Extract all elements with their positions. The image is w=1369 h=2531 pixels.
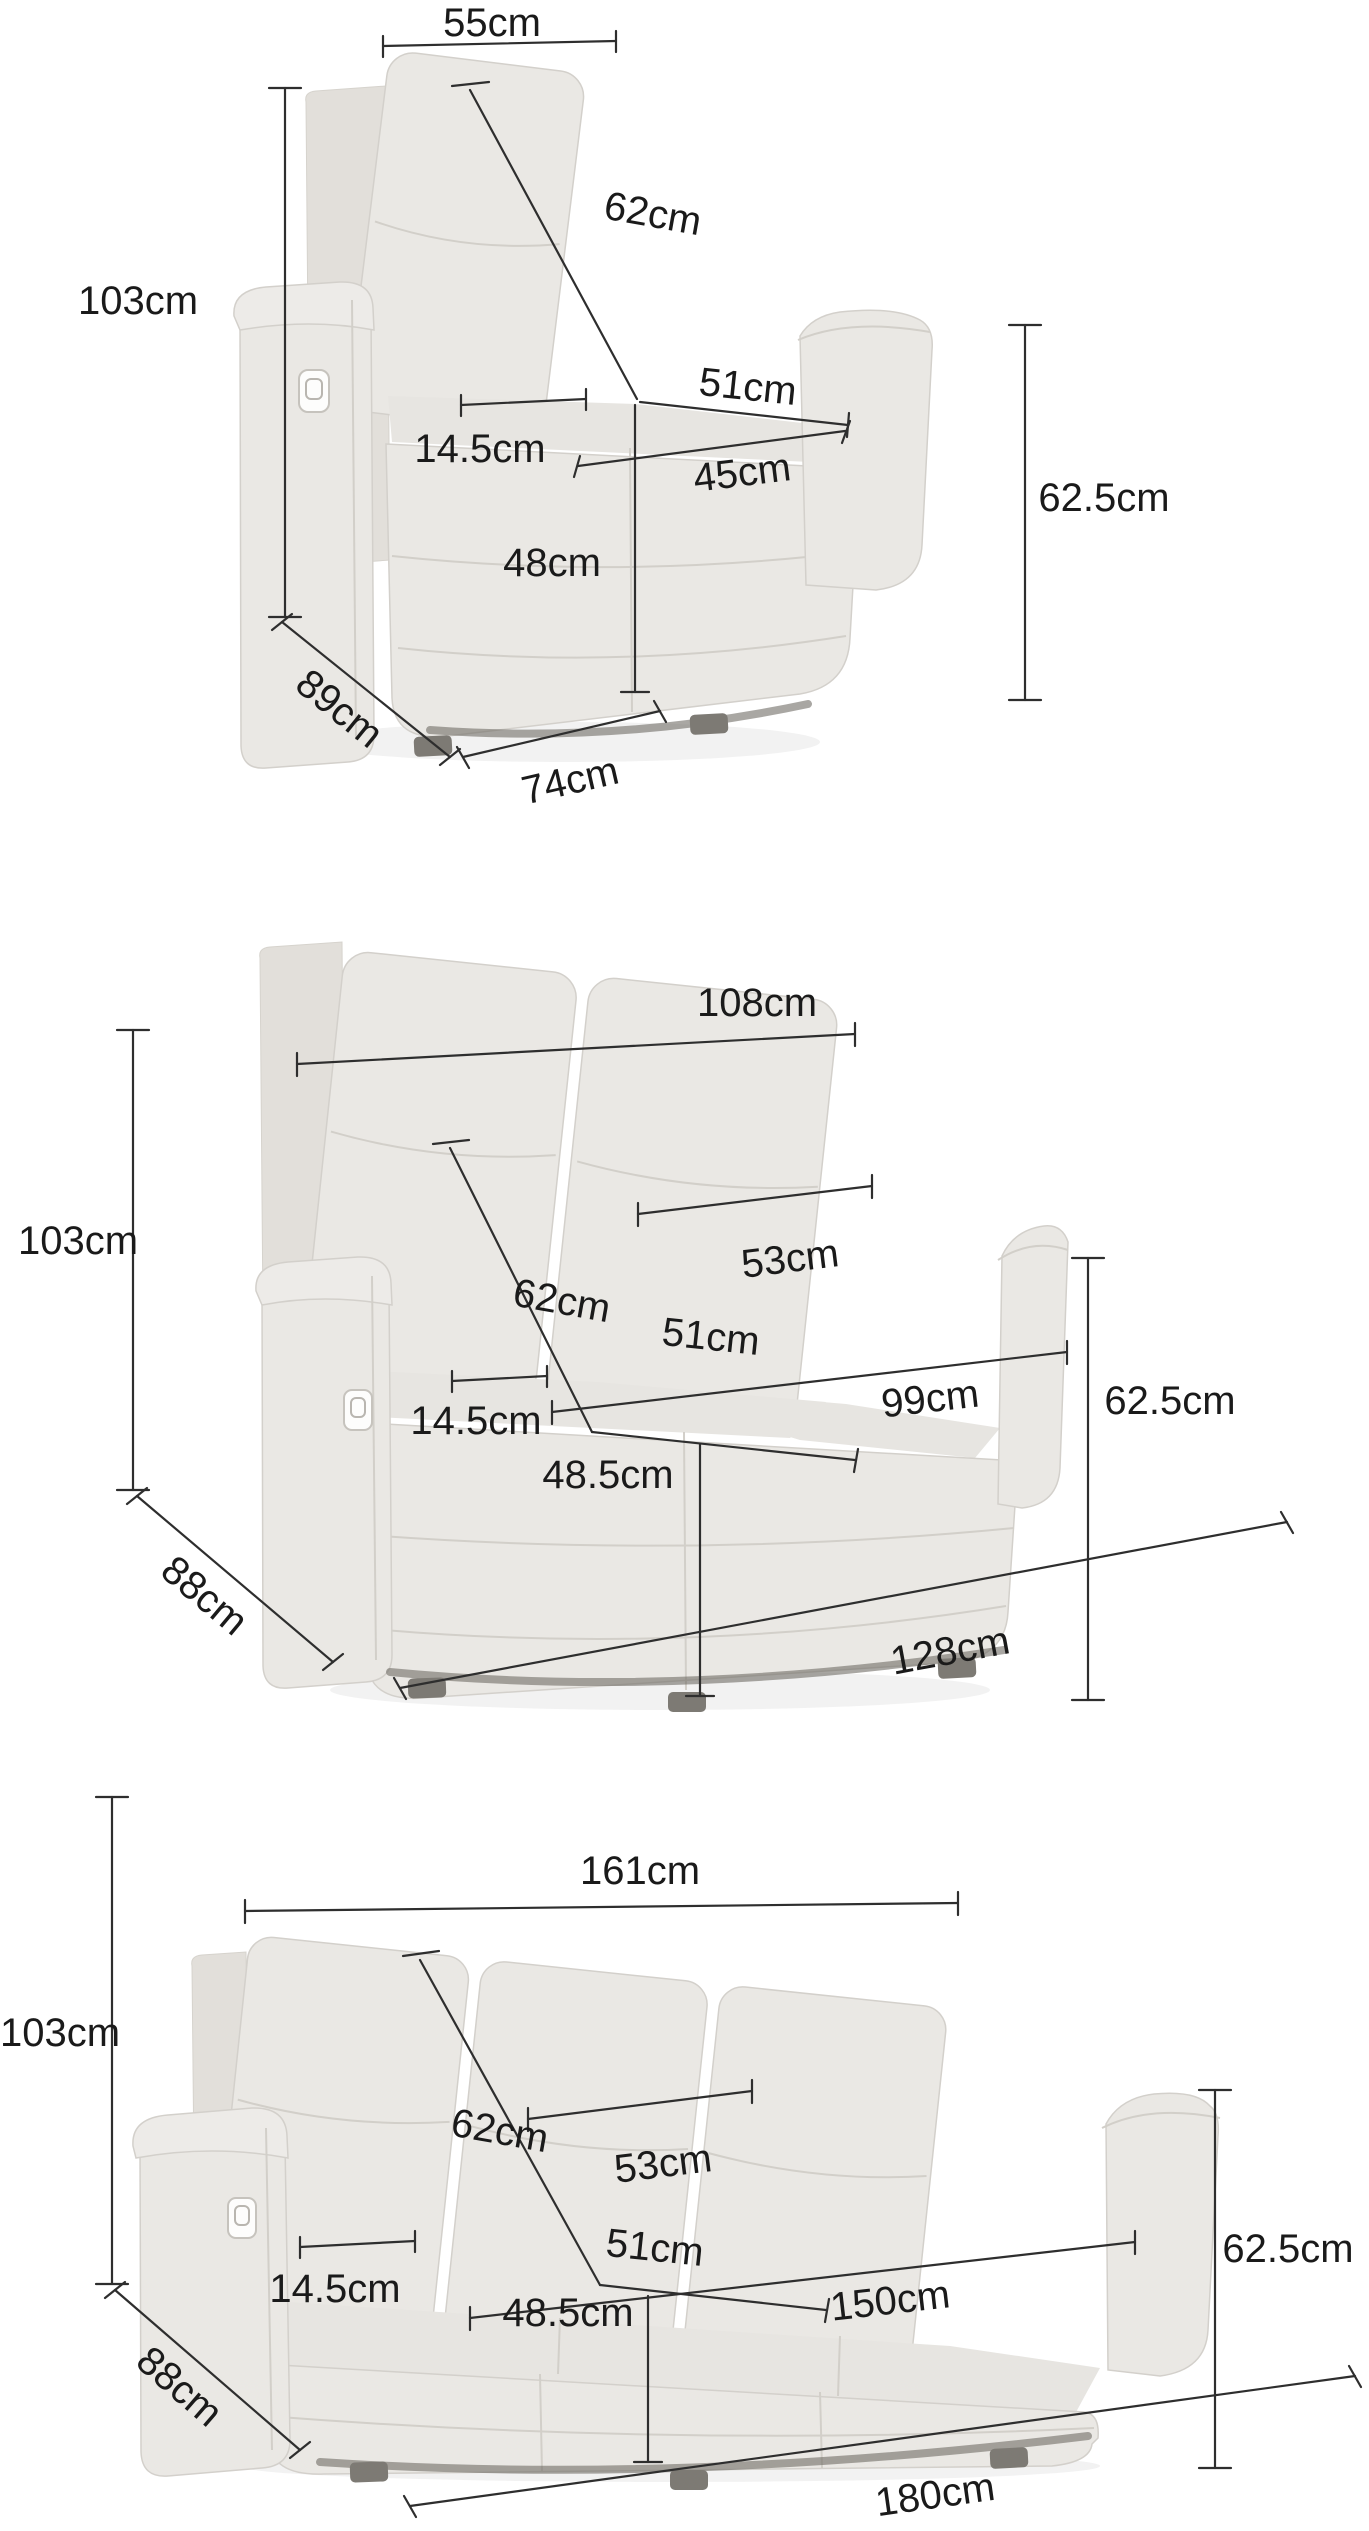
dim-height-label: 103cm bbox=[18, 1219, 138, 1263]
dim-height-label: 103cm bbox=[0, 2011, 120, 2055]
dim-depth-label: 88cm bbox=[153, 1547, 256, 1644]
dim-back-width-label: 55cm bbox=[443, 1, 541, 45]
right-armrest bbox=[998, 1226, 1068, 1508]
right-armrest bbox=[800, 310, 932, 590]
dim-arm-height-label: 62.5cm bbox=[1038, 476, 1169, 520]
dim-seat-width-label: 99cm bbox=[879, 1372, 981, 1427]
dim-arm-height-label: 62.5cm bbox=[1222, 2227, 1353, 2271]
dim-armrest-width-label: 14.5cm bbox=[414, 427, 545, 471]
dim-seat-height-label: 48cm bbox=[503, 541, 601, 585]
left-armrest-pad bbox=[133, 2108, 288, 2158]
foot bbox=[690, 713, 729, 735]
dimension-diagram: 55cm 103cm 62cm 51cm 14.5cm 45cm 48cm 62… bbox=[0, 0, 1369, 2531]
foot bbox=[670, 2470, 708, 2490]
dim-seat-height-label: 48.5cm bbox=[542, 1453, 673, 1497]
dim-armrest-width-label: 14.5cm bbox=[410, 1399, 541, 1443]
power-button-icon bbox=[344, 1390, 372, 1430]
dim-armrest-width-label: 14.5cm bbox=[269, 2267, 400, 2311]
armchair-illustration bbox=[234, 50, 932, 768]
power-button-icon bbox=[299, 370, 329, 412]
power-button-icon bbox=[228, 2198, 256, 2238]
dim-back-width-label: 108cm bbox=[697, 981, 817, 1025]
dim-seat-depth-label: 51cm bbox=[697, 360, 799, 414]
sofa-illustration bbox=[133, 1935, 1220, 2490]
right-armrest bbox=[1106, 2093, 1218, 2376]
dim-back-width-label: 161cm bbox=[580, 1849, 700, 1893]
foot bbox=[990, 2447, 1029, 2469]
dim-height-label: 103cm bbox=[78, 279, 198, 323]
dim-backrest-height-label: 62cm bbox=[601, 184, 705, 244]
dim-arm-height-label: 62.5cm bbox=[1104, 1379, 1235, 1423]
dim-seat-height-label: 48.5cm bbox=[502, 2291, 633, 2335]
foot bbox=[350, 2461, 389, 2482]
furniture-dimension-sheet: 55cm 103cm 62cm 51cm 14.5cm 45cm 48cm 62… bbox=[0, 0, 1369, 2531]
